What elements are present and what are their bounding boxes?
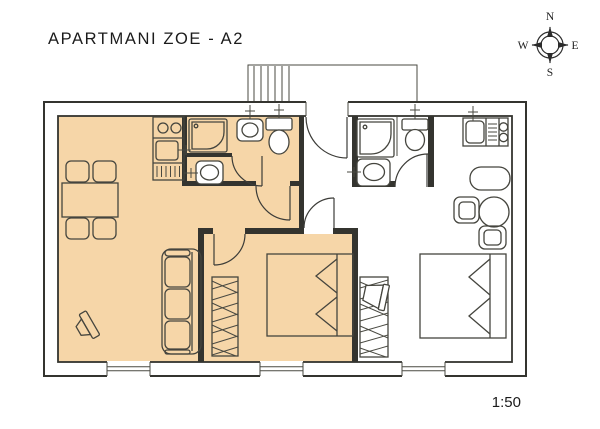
entrance-porch xyxy=(248,65,417,102)
floor-plan: APARTMANI ZOE - A2 N S E W xyxy=(0,0,600,429)
entrance-opening xyxy=(306,101,348,117)
compass-rose: N S E W xyxy=(518,11,579,79)
window-unit2-bedroom xyxy=(402,361,445,377)
compass-east-label: E xyxy=(571,40,578,52)
staircase xyxy=(254,66,289,101)
window-a2-bedroom xyxy=(260,361,303,377)
scale-label: 1:50 xyxy=(492,394,521,411)
floor-plan-sheet: APARTMANI ZOE - A2 N S E W xyxy=(0,0,600,429)
window-living-room xyxy=(107,361,150,377)
compass-inner-circle xyxy=(541,36,559,54)
compass-west-label: W xyxy=(518,40,529,52)
shower xyxy=(357,119,394,157)
page-title: APARTMANI ZOE - A2 xyxy=(48,30,244,48)
compass-north-label: N xyxy=(546,11,555,23)
compass-south-label: S xyxy=(547,67,553,79)
porch-outline xyxy=(248,65,417,102)
